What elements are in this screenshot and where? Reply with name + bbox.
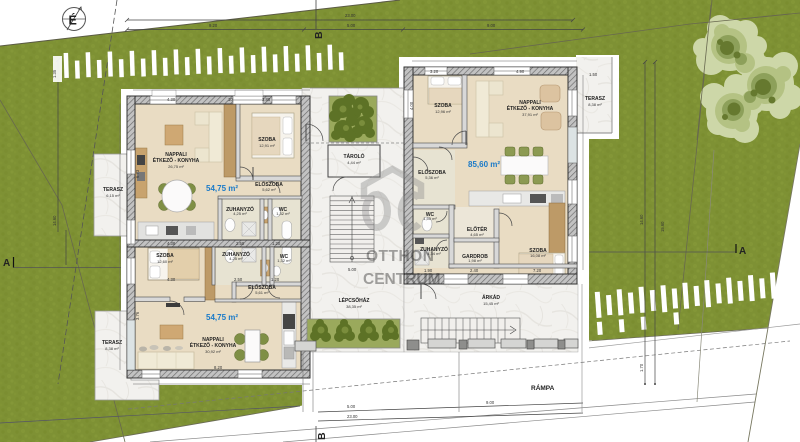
svg-text:A: A xyxy=(739,246,746,257)
svg-text:ÉTKEZŐ - KONYHA: ÉTKEZŐ - KONYHA xyxy=(153,156,200,164)
svg-text:15.60: 15.60 xyxy=(660,221,665,232)
svg-text:2.50: 2.50 xyxy=(234,277,243,282)
svg-text:85,60 m²: 85,60 m² xyxy=(468,160,500,169)
svg-text:A: A xyxy=(3,258,10,269)
svg-text:5.00: 5.00 xyxy=(347,404,356,409)
svg-text:23.00: 23.00 xyxy=(345,13,356,18)
svg-text:OTTHON: OTTHON xyxy=(366,248,434,265)
svg-text:É: É xyxy=(69,13,77,28)
svg-text:7.20: 7.20 xyxy=(533,268,542,273)
svg-text:9.20: 9.20 xyxy=(209,23,218,28)
svg-text:4,25 m²: 4,25 m² xyxy=(233,211,247,216)
svg-text:1.70: 1.70 xyxy=(639,363,644,372)
svg-text:8.20: 8.20 xyxy=(214,365,223,370)
svg-text:1,50 m²: 1,50 m² xyxy=(423,216,437,221)
svg-text:4.38: 4.38 xyxy=(167,241,176,246)
svg-text:54,75 m²: 54,75 m² xyxy=(206,313,238,322)
svg-text:1.20: 1.20 xyxy=(272,241,281,246)
svg-text:12,60 m²: 12,60 m² xyxy=(157,259,173,264)
svg-text:12,96 m²: 12,96 m² xyxy=(435,109,451,114)
svg-text:4.30: 4.30 xyxy=(167,277,176,282)
svg-text:1.35: 1.35 xyxy=(52,69,57,78)
svg-text:LÉPCSŐHÁZ: LÉPCSŐHÁZ xyxy=(339,296,370,304)
svg-text:4.90: 4.90 xyxy=(516,69,525,74)
svg-text:15,45 m²: 15,45 m² xyxy=(483,301,499,306)
svg-text:9.00: 9.00 xyxy=(486,400,495,405)
svg-text:B: B xyxy=(313,31,325,39)
svg-text:5.00: 5.00 xyxy=(347,23,356,28)
svg-text:4,65 m²: 4,65 m² xyxy=(470,232,484,237)
svg-text:1,98 m²: 1,98 m² xyxy=(468,258,482,263)
svg-text:ÉTKEZŐ - KONYHA: ÉTKEZŐ - KONYHA xyxy=(190,341,237,349)
svg-text:54,75 m²: 54,75 m² xyxy=(206,184,238,193)
svg-text:4,44 m²: 4,44 m² xyxy=(347,160,361,165)
svg-text:1,32 m²: 1,32 m² xyxy=(277,258,291,263)
svg-text:3.76: 3.76 xyxy=(135,311,140,320)
svg-text:5,61 m²: 5,61 m² xyxy=(255,290,269,295)
svg-text:B: B xyxy=(316,432,328,440)
svg-text:30,92 m²: 30,92 m² xyxy=(205,349,221,354)
svg-text:14.60: 14.60 xyxy=(52,215,57,226)
svg-text:CENTRUM: CENTRUM xyxy=(363,271,441,288)
svg-text:23.00: 23.00 xyxy=(347,414,358,419)
svg-text:16,08 m²: 16,08 m² xyxy=(530,253,546,258)
svg-text:12,91 m²: 12,91 m² xyxy=(259,143,275,148)
svg-text:26,75 m²: 26,75 m² xyxy=(168,164,184,169)
svg-text:RÁMPA: RÁMPA xyxy=(531,383,555,392)
svg-text:8,38 m²: 8,38 m² xyxy=(588,102,602,107)
svg-text:ÁRKÁD: ÁRKÁD xyxy=(482,294,500,301)
svg-text:5.00: 5.00 xyxy=(348,267,357,272)
svg-text:37,91 m²: 37,91 m² xyxy=(522,112,538,117)
svg-text:1,32 m²: 1,32 m² xyxy=(276,211,290,216)
svg-text:6,15 m²: 6,15 m² xyxy=(106,193,120,198)
svg-text:2.40: 2.40 xyxy=(470,268,479,273)
svg-text:ÉTKEZŐ - KONYHA: ÉTKEZŐ - KONYHA xyxy=(507,104,554,112)
svg-text:4.30: 4.30 xyxy=(167,97,176,102)
svg-text:4,25 m²: 4,25 m² xyxy=(229,256,243,261)
svg-text:9.00: 9.00 xyxy=(487,23,496,28)
svg-text:4.00: 4.00 xyxy=(409,101,414,110)
svg-text:5,62 m²: 5,62 m² xyxy=(262,187,276,192)
svg-text:38,35 m²: 38,35 m² xyxy=(346,304,362,309)
svg-text:10: 10 xyxy=(228,97,233,102)
svg-text:3.88: 3.88 xyxy=(262,97,271,102)
svg-text:5,36 m²: 5,36 m² xyxy=(425,175,439,180)
svg-text:TÁROLÓ: TÁROLÓ xyxy=(343,152,364,160)
svg-text:2.50: 2.50 xyxy=(236,241,245,246)
svg-text:8,38 m²: 8,38 m² xyxy=(105,346,119,351)
svg-text:14.60: 14.60 xyxy=(639,214,644,225)
svg-text:1.20: 1.20 xyxy=(271,277,280,282)
svg-text:1.50: 1.50 xyxy=(589,72,598,77)
svg-text:6.73: 6.73 xyxy=(135,169,140,178)
svg-text:3.20: 3.20 xyxy=(430,69,439,74)
